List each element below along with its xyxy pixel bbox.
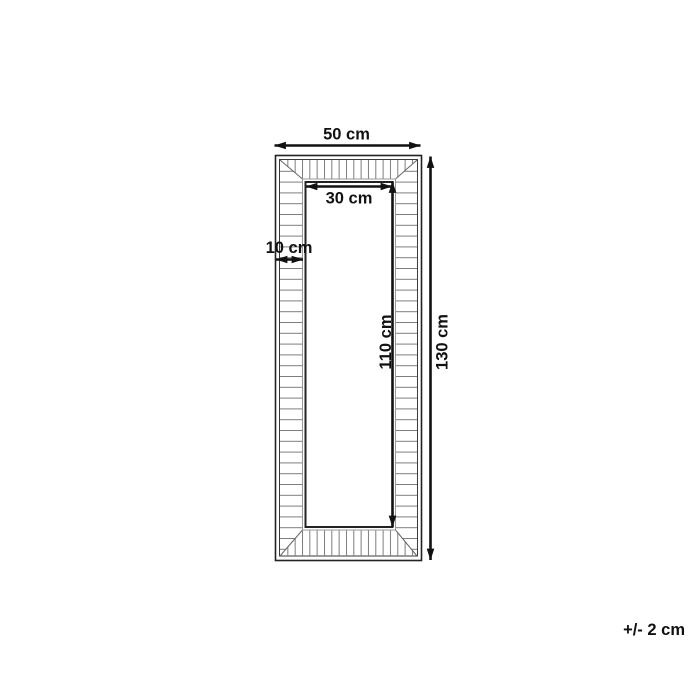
frame-band-top	[280, 160, 417, 179]
mirror-frame	[276, 156, 422, 561]
inner-width-label: 30 cm	[326, 190, 373, 208]
frame-depth-label: 10 cm	[266, 239, 313, 257]
frame-band-bottom	[280, 530, 417, 556]
frame-band-right	[396, 160, 418, 556]
frame-band-left	[280, 160, 303, 556]
outer-height-label: 130 cm	[434, 314, 452, 370]
tolerance-note: +/- 2 cm	[623, 621, 685, 639]
inner-height-label: 110 cm	[377, 314, 395, 369]
outer-width-label: 50 cm	[323, 126, 370, 144]
dimension-frame-depth: 10 cm	[266, 239, 313, 260]
mirror-dimension-diagram: 50 cm 30 cm 10 cm 110 cm 130 cm +/- 2 cm	[0, 0, 700, 700]
